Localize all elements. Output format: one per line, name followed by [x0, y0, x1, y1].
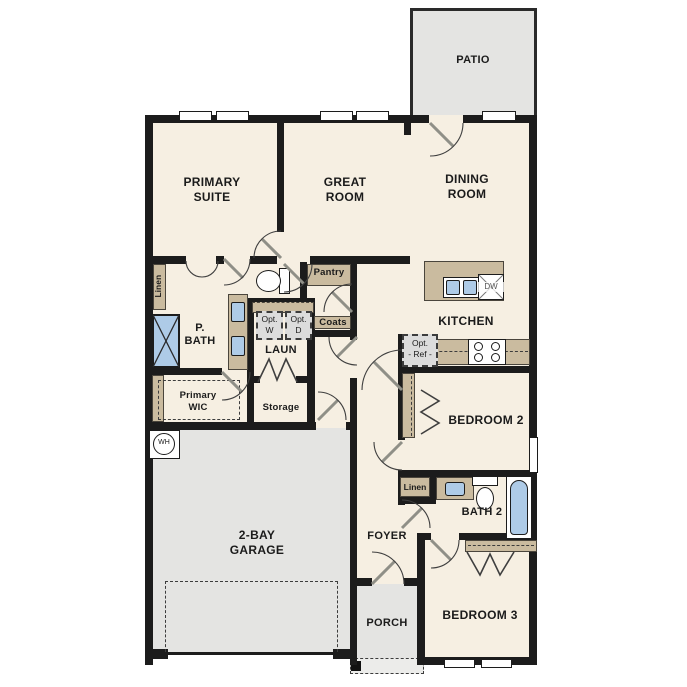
window-great-2 — [356, 111, 389, 121]
wall-bottom-bed3 — [417, 657, 537, 665]
room-label-pantry: Pantry — [299, 267, 359, 279]
room-label-garage: 2-BAY GARAGE — [197, 528, 317, 557]
wall-primary-bottom-a — [145, 256, 186, 264]
room-label-bedroom3: BEDROOM 3 — [420, 608, 540, 623]
garage-door-threshold — [168, 652, 333, 655]
optional-refrigerator-label: Opt. - Ref - — [402, 338, 438, 360]
stove-burner-4 — [491, 353, 500, 362]
wall-primary-great-divider — [277, 115, 284, 232]
wall-primary-bottom-c — [250, 256, 277, 264]
stove-burner-2 — [491, 342, 500, 351]
room-label-kitchen: KITCHEN — [416, 314, 516, 329]
room-label-dining-room: DINING ROOM — [417, 172, 517, 201]
wall-bed2-top — [398, 366, 537, 373]
island-sink-left — [446, 280, 460, 295]
room-label-primary-bath: P. BATH — [170, 322, 230, 349]
wall-bed3-top-a — [417, 533, 431, 540]
garage-door-dashed — [165, 581, 338, 652]
porch-steps — [350, 658, 424, 674]
closet-label-linen-primary: Linen — [153, 264, 163, 308]
bed3-closet-rod — [468, 545, 534, 547]
water-heater-label: WH — [153, 438, 175, 447]
bed2-closet-shelf — [402, 373, 415, 438]
dishwasher-label: DW — [478, 282, 504, 292]
room-label-patio: PATIO — [433, 54, 513, 67]
wall-greatroom-bottom — [310, 256, 410, 264]
room-label-bath2: BATH 2 — [447, 506, 517, 519]
optional-dryer-label: Opt. D — [285, 314, 312, 336]
window-primary-2 — [216, 111, 249, 121]
window-great-1 — [320, 111, 353, 121]
stove — [468, 339, 506, 365]
optional-washer-label: Opt. W — [256, 314, 283, 336]
room-label-coats: Coats — [303, 317, 363, 329]
toilet-bath2-tank — [472, 476, 498, 486]
wall-coats-bottom — [312, 330, 357, 337]
bath2-sink — [445, 482, 465, 496]
wall-pbath-wic — [152, 368, 222, 375]
window-bed3-2 — [481, 659, 512, 668]
wall-garage-top-a — [145, 422, 316, 430]
window-bed2 — [529, 437, 538, 473]
wall-storage-top-right — [296, 376, 308, 383]
room-label-storage: Storage — [246, 402, 316, 414]
room-label-foyer: FOYER — [357, 530, 417, 543]
wall-porch-top-a — [350, 578, 372, 586]
toilet-pbath-bowl — [256, 270, 281, 292]
stove-burner-1 — [474, 342, 483, 351]
wall-storage-top-left — [247, 376, 260, 383]
wall-foyer-right — [417, 533, 425, 665]
wall-primary-bottom-b — [216, 256, 224, 264]
room-label-bedroom2: BEDROOM 2 — [426, 413, 546, 428]
room-label-porch: PORCH — [356, 617, 418, 630]
room-label-primary-wic: Primary WIC — [158, 390, 238, 413]
wall-right — [529, 115, 537, 665]
floor-plan: PATIO PRIMARY SUITE GREAT ROOM DINING RO… — [0, 0, 687, 687]
window-dining — [482, 111, 516, 121]
room-label-great-room: GREAT ROOM — [295, 175, 395, 204]
pbath-sink-2 — [231, 336, 245, 356]
room-label-primary-suite: PRIMARY SUITE — [152, 175, 272, 204]
pbath-sink-1 — [231, 302, 245, 322]
wall-porch-top-b — [404, 578, 425, 586]
bed2-closet-rod — [411, 376, 413, 436]
window-bed3-1 — [444, 659, 475, 668]
wall-dining-stub — [404, 115, 411, 135]
room-label-laundry: LAUN — [251, 344, 311, 357]
stove-burner-3 — [474, 353, 483, 362]
closet-label-linen-hall: Linen — [400, 482, 430, 492]
window-primary-1 — [179, 111, 212, 121]
island-sink-right — [463, 280, 477, 295]
